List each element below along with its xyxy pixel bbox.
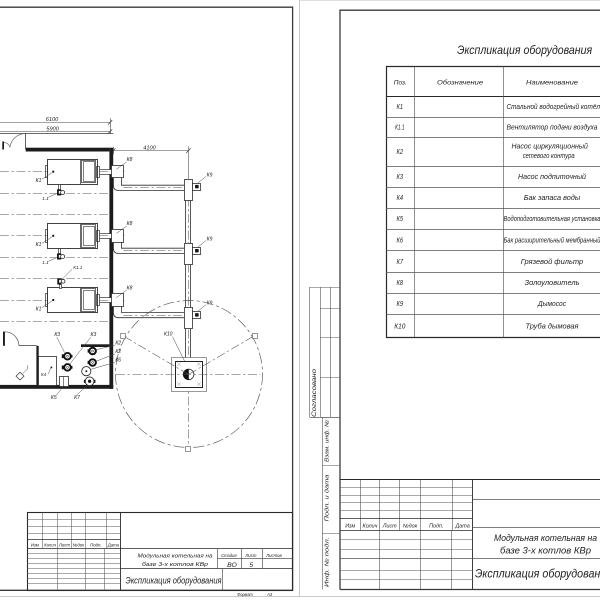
svg-text:К3: К3 [397,174,404,181]
svg-text:К1: К1 [36,178,42,184]
svg-text:К6: К6 [115,358,121,364]
svg-text:Насос подпиточный: Насос подпиточный [518,173,586,181]
svg-text:К2: К2 [115,340,121,346]
svg-text:Труба дымовая: Труба дымовая [526,322,579,330]
svg-text:Колич: Колич [363,523,378,529]
svg-text:Стадия: Стадия [221,553,237,558]
svg-text:Модульная котельная на: Модульная котельная на [494,533,597,543]
svg-text:К10: К10 [394,323,405,330]
svg-text:5: 5 [249,562,253,569]
svg-text:№док: №док [403,523,418,529]
svg-text:1.1: 1.1 [42,260,49,265]
svg-text:6100: 6100 [46,117,59,123]
svg-text:Лист: Лист [58,543,70,548]
svg-text:Формат: Формат [237,592,253,597]
svg-text:Бак расширительный мембранный: Бак расширительный мембранный [504,236,600,244]
svg-text:ВО: ВО [227,562,237,569]
svg-text:К9: К9 [397,301,404,308]
svg-text:сетевого контура: сетевого контура [523,153,575,160]
svg-text:1.1: 1.1 [42,196,49,201]
svg-text:К8: К8 [127,157,133,163]
svg-text:Лист: Лист [382,523,397,529]
svg-text:Модульная котельная на: Модульная котельная на [138,553,213,559]
svg-text:Подп.: Подп. [429,523,443,529]
svg-text:Золоуловитель: Золоуловитель [525,280,580,287]
svg-text:Взам. инф. №: Взам. инф. № [324,420,330,462]
svg-text:К1: К1 [36,242,42,248]
svg-text:К1: К1 [397,104,404,111]
svg-text:Экспликация оборудования: Экспликация оборудования [126,576,222,586]
svg-text:Согласовано: Согласовано [311,368,318,417]
svg-text:К7: К7 [74,395,80,401]
svg-text:Изм: Изм [345,523,355,529]
svg-text:Дымосос: Дымосос [537,301,566,308]
svg-text:К3: К3 [54,332,60,338]
svg-text:К5: К5 [397,216,404,223]
svg-text:К9: К9 [207,172,213,178]
svg-text:Грязевой фильтр: Грязевой фильтр [521,258,584,266]
svg-text:К5: К5 [51,395,57,401]
svg-text:К1: К1 [36,306,42,312]
svg-text:Колич: Колич [44,543,57,548]
svg-text:К2: К2 [397,149,404,156]
svg-text:Вентилятор подачи воздуха: Вентилятор подачи воздуха [507,124,598,132]
svg-text:Дата: Дата [454,523,469,529]
svg-text:Обозначение: Обозначение [437,78,483,86]
svg-text:А3: А3 [266,592,273,597]
svg-text:К4: К4 [397,195,404,202]
svg-text:базе 3-х котлов КВр: базе 3-х котлов КВр [142,562,208,568]
svg-text:5900: 5900 [46,126,59,132]
svg-text:Стальной водогрейный котёл КВр: Стальной водогрейный котёл КВр [507,103,600,111]
svg-text:Дата: Дата [107,543,120,548]
svg-text:Бак запаса воды: Бак запаса воды [524,194,581,202]
svg-text:Насос циркуляционный: Насос циркуляционный [511,143,588,151]
svg-text:К2: К2 [115,349,121,355]
svg-text:К8: К8 [127,285,133,291]
svg-text:№док: №док [73,543,85,548]
svg-text:Экспликация оборудования: Экспликация оборудования [457,44,592,57]
svg-text:К10: К10 [164,331,173,337]
svg-text:К9: К9 [207,236,213,242]
svg-text:К1.1: К1.1 [395,125,404,132]
svg-text:базе 3-х котлов КВр: базе 3-х котлов КВр [500,546,591,556]
svg-text:Инф. № подл.: Инф. № подл. [324,537,330,587]
svg-text:К8: К8 [397,280,404,287]
svg-text:Листов: Листов [265,553,282,558]
svg-text:К4: К4 [41,372,47,377]
svg-text:Подп.: Подп. [90,543,101,548]
svg-text:Лист: Лист [244,553,256,558]
svg-text:К8: К8 [127,221,133,227]
svg-text:Экспликация оборудования: Экспликация оборудования [475,567,600,581]
svg-text:К7: К7 [397,259,404,266]
svg-text:Подп. и дата: Подп. и дата [324,475,330,522]
svg-text:Наименование: Наименование [526,79,578,86]
svg-text:К1.1: К1.1 [73,265,83,270]
svg-text:Поз.: Поз. [394,79,407,86]
svg-text:Изм: Изм [31,543,39,548]
svg-text:4100: 4100 [143,145,156,151]
svg-text:К3: К3 [91,332,97,338]
svg-text:К6: К6 [397,237,404,244]
svg-text:Водоподготовительная установка: Водоподготовительная установка [504,215,600,223]
